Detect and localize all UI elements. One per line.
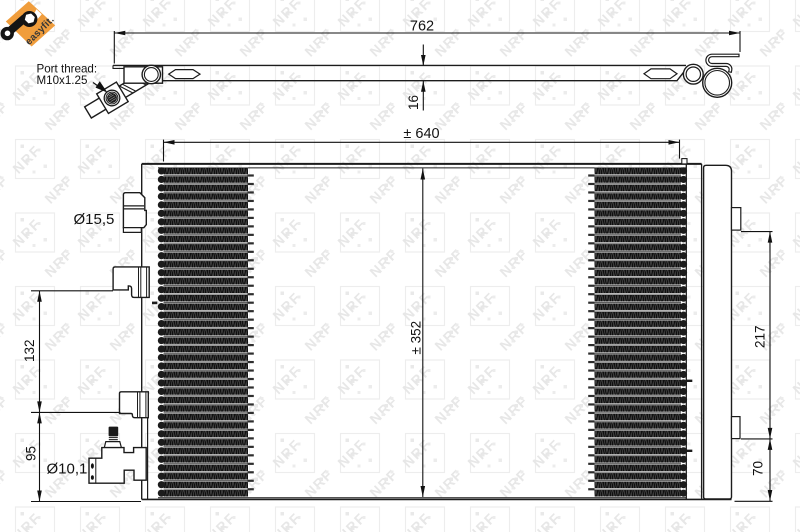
svg-text:± 352: ± 352 (409, 321, 424, 355)
svg-text:± 640: ± 640 (403, 126, 439, 142)
svg-text:16: 16 (406, 95, 421, 110)
svg-text:762: 762 (410, 19, 434, 35)
svg-text:95: 95 (24, 446, 39, 461)
svg-text:217: 217 (753, 325, 768, 348)
svg-text:Ø10,1: Ø10,1 (47, 461, 88, 478)
svg-text:70: 70 (751, 461, 766, 476)
svg-text:132: 132 (22, 339, 37, 362)
svg-text:M10x1.25: M10x1.25 (37, 74, 88, 87)
svg-text:Ø15,5: Ø15,5 (74, 211, 115, 228)
